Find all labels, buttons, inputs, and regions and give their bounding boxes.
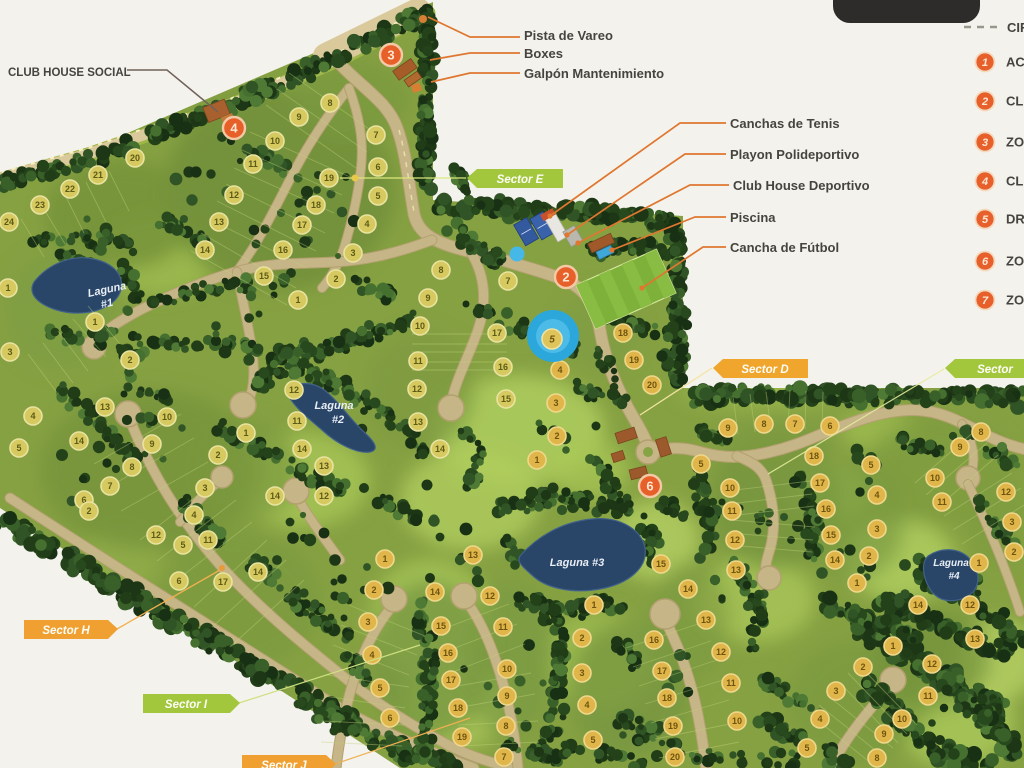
svg-text:1: 1 — [92, 317, 97, 327]
svg-text:11: 11 — [498, 622, 508, 632]
svg-text:17: 17 — [218, 577, 228, 587]
svg-text:1: 1 — [982, 57, 988, 69]
svg-text:Sector E: Sector E — [497, 174, 544, 186]
svg-text:1: 1 — [5, 283, 10, 293]
svg-text:5: 5 — [804, 743, 809, 753]
svg-text:16: 16 — [649, 635, 659, 645]
svg-text:Laguna #3: Laguna #3 — [550, 557, 604, 569]
svg-text:CLUB SOCIAL: CLUB SOCIAL — [1006, 174, 1024, 189]
svg-text:14: 14 — [270, 491, 280, 501]
svg-text:16: 16 — [498, 362, 508, 372]
svg-text:8: 8 — [129, 462, 134, 472]
svg-text:3: 3 — [553, 398, 558, 408]
svg-text:2: 2 — [127, 355, 132, 365]
svg-text:8: 8 — [874, 753, 879, 763]
svg-text:4: 4 — [817, 714, 822, 724]
svg-text:14: 14 — [913, 600, 923, 610]
svg-text:Sector I: Sector I — [165, 699, 208, 711]
svg-text:11: 11 — [292, 416, 302, 426]
svg-text:#1: #1 — [100, 297, 114, 311]
svg-text:10: 10 — [897, 714, 907, 724]
svg-text:11: 11 — [727, 506, 737, 516]
svg-text:2: 2 — [86, 506, 91, 516]
svg-text:9: 9 — [425, 293, 430, 303]
svg-text:14: 14 — [830, 555, 840, 565]
svg-text:4: 4 — [981, 176, 988, 188]
svg-text:12: 12 — [485, 591, 495, 601]
svg-text:1: 1 — [534, 455, 539, 465]
svg-text:16: 16 — [278, 245, 288, 255]
svg-text:11: 11 — [726, 678, 736, 688]
svg-text:20: 20 — [670, 752, 680, 762]
svg-text:7: 7 — [792, 419, 797, 429]
svg-text:Sector: Sector — [977, 364, 1013, 376]
svg-text:Canchas de Tenis: Canchas de Tenis — [730, 116, 840, 131]
svg-text:18: 18 — [453, 703, 463, 713]
svg-text:17: 17 — [815, 478, 825, 488]
svg-text:15: 15 — [501, 394, 511, 404]
svg-text:23: 23 — [35, 200, 45, 210]
svg-text:13: 13 — [731, 565, 741, 575]
svg-text:19: 19 — [629, 355, 639, 365]
svg-text:6: 6 — [375, 162, 380, 172]
svg-text:CLUB HOUSE SOCIAL: CLUB HOUSE SOCIAL — [8, 67, 131, 79]
svg-text:11: 11 — [937, 497, 947, 507]
svg-text:13: 13 — [970, 634, 980, 644]
svg-text:5: 5 — [698, 459, 703, 469]
svg-text:12: 12 — [229, 190, 239, 200]
svg-text:2: 2 — [860, 662, 865, 672]
svg-text:8: 8 — [438, 265, 443, 275]
svg-text:14: 14 — [74, 436, 84, 446]
svg-text:10: 10 — [732, 716, 742, 726]
svg-text:7: 7 — [505, 276, 510, 286]
svg-text:4: 4 — [364, 219, 369, 229]
svg-text:2: 2 — [866, 551, 871, 561]
svg-text:10: 10 — [502, 664, 512, 674]
svg-text:17: 17 — [492, 328, 502, 338]
svg-text:10: 10 — [725, 483, 735, 493]
svg-text:5: 5 — [982, 214, 989, 226]
svg-text:#4: #4 — [948, 571, 960, 582]
svg-text:7: 7 — [501, 752, 506, 762]
svg-text:3: 3 — [387, 48, 394, 63]
svg-text:5: 5 — [590, 735, 595, 745]
svg-text:1: 1 — [890, 641, 895, 651]
svg-text:2: 2 — [554, 431, 559, 441]
svg-text:6: 6 — [646, 479, 653, 494]
svg-text:4: 4 — [191, 510, 196, 520]
svg-text:22: 22 — [65, 184, 75, 194]
svg-text:#2: #2 — [332, 414, 344, 426]
svg-text:2: 2 — [333, 274, 338, 284]
svg-text:13: 13 — [413, 417, 423, 427]
svg-text:2: 2 — [371, 585, 376, 595]
svg-text:14: 14 — [297, 444, 307, 454]
svg-text:12: 12 — [412, 384, 422, 394]
svg-text:11: 11 — [203, 535, 213, 545]
svg-text:9: 9 — [504, 691, 509, 701]
svg-text:3: 3 — [365, 617, 370, 627]
svg-text:Piscina: Piscina — [730, 210, 776, 225]
svg-text:12: 12 — [151, 530, 161, 540]
svg-text:19: 19 — [457, 732, 467, 742]
svg-text:16: 16 — [821, 504, 831, 514]
svg-text:3: 3 — [982, 137, 988, 149]
svg-text:5: 5 — [549, 335, 555, 346]
svg-text:11: 11 — [248, 159, 258, 169]
svg-text:2: 2 — [215, 450, 220, 460]
svg-text:12: 12 — [730, 535, 740, 545]
svg-text:2: 2 — [579, 633, 584, 643]
svg-text:8: 8 — [503, 721, 508, 731]
svg-text:5: 5 — [16, 443, 21, 453]
svg-text:12: 12 — [319, 491, 329, 501]
svg-text:15: 15 — [826, 530, 836, 540]
svg-text:1: 1 — [591, 600, 596, 610]
svg-text:17: 17 — [297, 220, 307, 230]
svg-text:12: 12 — [289, 385, 299, 395]
svg-text:12: 12 — [965, 600, 975, 610]
svg-text:15: 15 — [656, 559, 666, 569]
svg-text:5: 5 — [868, 460, 873, 470]
svg-text:3: 3 — [1009, 517, 1014, 527]
svg-text:1: 1 — [382, 554, 387, 564]
svg-text:9: 9 — [725, 423, 730, 433]
svg-text:Laguna: Laguna — [314, 400, 353, 412]
svg-text:7: 7 — [107, 481, 112, 491]
svg-text:CIRCUITO: CIRCUITO — [1007, 20, 1024, 35]
svg-text:DRIVING: DRIVING — [1006, 212, 1024, 227]
svg-text:14: 14 — [253, 567, 263, 577]
svg-text:3: 3 — [7, 347, 12, 357]
svg-text:17: 17 — [657, 666, 667, 676]
svg-text:13: 13 — [319, 461, 329, 471]
svg-text:20: 20 — [130, 153, 140, 163]
svg-text:3: 3 — [202, 483, 207, 493]
svg-text:Sector D: Sector D — [741, 364, 788, 376]
svg-text:Laguna: Laguna — [933, 558, 969, 569]
svg-text:12: 12 — [927, 659, 937, 669]
svg-text:13: 13 — [100, 402, 110, 412]
svg-text:24: 24 — [4, 217, 14, 227]
svg-text:Boxes: Boxes — [524, 46, 563, 61]
svg-text:6: 6 — [827, 421, 832, 431]
svg-text:6: 6 — [387, 713, 392, 723]
svg-text:3: 3 — [833, 686, 838, 696]
svg-text:18: 18 — [311, 200, 321, 210]
svg-text:15: 15 — [436, 621, 446, 631]
svg-text:13: 13 — [701, 615, 711, 625]
svg-text:8: 8 — [978, 427, 983, 437]
svg-text:9: 9 — [881, 729, 886, 739]
svg-text:1: 1 — [243, 428, 248, 438]
svg-text:15: 15 — [259, 271, 269, 281]
svg-text:2: 2 — [562, 270, 569, 285]
svg-text:14: 14 — [435, 444, 445, 454]
svg-text:5: 5 — [180, 540, 185, 550]
svg-text:7: 7 — [982, 295, 989, 307]
svg-text:8: 8 — [761, 419, 766, 429]
svg-text:10: 10 — [415, 321, 425, 331]
svg-text:Sector H: Sector H — [42, 625, 90, 637]
svg-text:20: 20 — [647, 380, 657, 390]
svg-text:1: 1 — [976, 558, 981, 568]
svg-text:14: 14 — [200, 245, 210, 255]
svg-text:12: 12 — [1001, 487, 1011, 497]
svg-text:ZONA BOXES: ZONA BOXES — [1006, 135, 1024, 150]
svg-text:4: 4 — [557, 365, 562, 375]
svg-text:6: 6 — [982, 256, 989, 268]
svg-text:3: 3 — [579, 668, 584, 678]
svg-text:13: 13 — [214, 217, 224, 227]
svg-text:4: 4 — [874, 490, 879, 500]
svg-text:14: 14 — [430, 587, 440, 597]
svg-text:2: 2 — [1011, 547, 1016, 557]
svg-text:5: 5 — [375, 191, 380, 201]
svg-text:Playon Polideportivo: Playon Polideportivo — [730, 147, 859, 162]
svg-text:13: 13 — [468, 550, 478, 560]
svg-text:Sector J: Sector J — [261, 760, 307, 768]
svg-text:Galpón Mantenimiento: Galpón Mantenimiento — [524, 66, 664, 81]
svg-text:CLUB HOUSE: CLUB HOUSE — [1006, 94, 1024, 109]
svg-text:11: 11 — [413, 356, 423, 366]
svg-text:18: 18 — [809, 451, 819, 461]
svg-text:5: 5 — [377, 683, 382, 693]
svg-text:21: 21 — [93, 170, 103, 180]
svg-text:10: 10 — [930, 473, 940, 483]
svg-text:Club House Deportivo: Club House Deportivo — [733, 178, 870, 193]
svg-text:12: 12 — [716, 647, 726, 657]
svg-text:7: 7 — [373, 130, 378, 140]
svg-text:ZONA SERV: ZONA SERV — [1006, 293, 1024, 308]
svg-text:19: 19 — [668, 721, 678, 731]
svg-text:4: 4 — [30, 411, 35, 421]
svg-text:16: 16 — [443, 648, 453, 658]
svg-text:18: 18 — [618, 328, 628, 338]
svg-text:6: 6 — [176, 576, 181, 586]
svg-text:ZONA PLAZA: ZONA PLAZA — [1006, 254, 1024, 269]
svg-text:4: 4 — [584, 700, 589, 710]
svg-text:1: 1 — [295, 295, 300, 305]
svg-text:9: 9 — [296, 112, 301, 122]
svg-text:9: 9 — [149, 439, 154, 449]
svg-text:2: 2 — [981, 96, 988, 108]
svg-text:19: 19 — [324, 173, 334, 183]
svg-text:1: 1 — [854, 578, 859, 588]
svg-text:10: 10 — [270, 136, 280, 146]
svg-text:ACCESO: ACCESO — [1006, 55, 1024, 70]
svg-text:14: 14 — [683, 584, 693, 594]
svg-text:17: 17 — [446, 675, 456, 685]
svg-text:3: 3 — [350, 248, 355, 258]
svg-text:4: 4 — [230, 121, 238, 136]
svg-text:Cancha de Fútbol: Cancha de Fútbol — [730, 240, 839, 255]
svg-text:3: 3 — [874, 524, 879, 534]
svg-text:8: 8 — [327, 98, 332, 108]
svg-text:10: 10 — [162, 412, 172, 422]
svg-text:18: 18 — [662, 693, 672, 703]
svg-text:11: 11 — [923, 691, 933, 701]
svg-text:9: 9 — [957, 442, 962, 452]
svg-text:Pista de Vareo: Pista de Vareo — [524, 28, 613, 43]
svg-text:4: 4 — [369, 650, 374, 660]
